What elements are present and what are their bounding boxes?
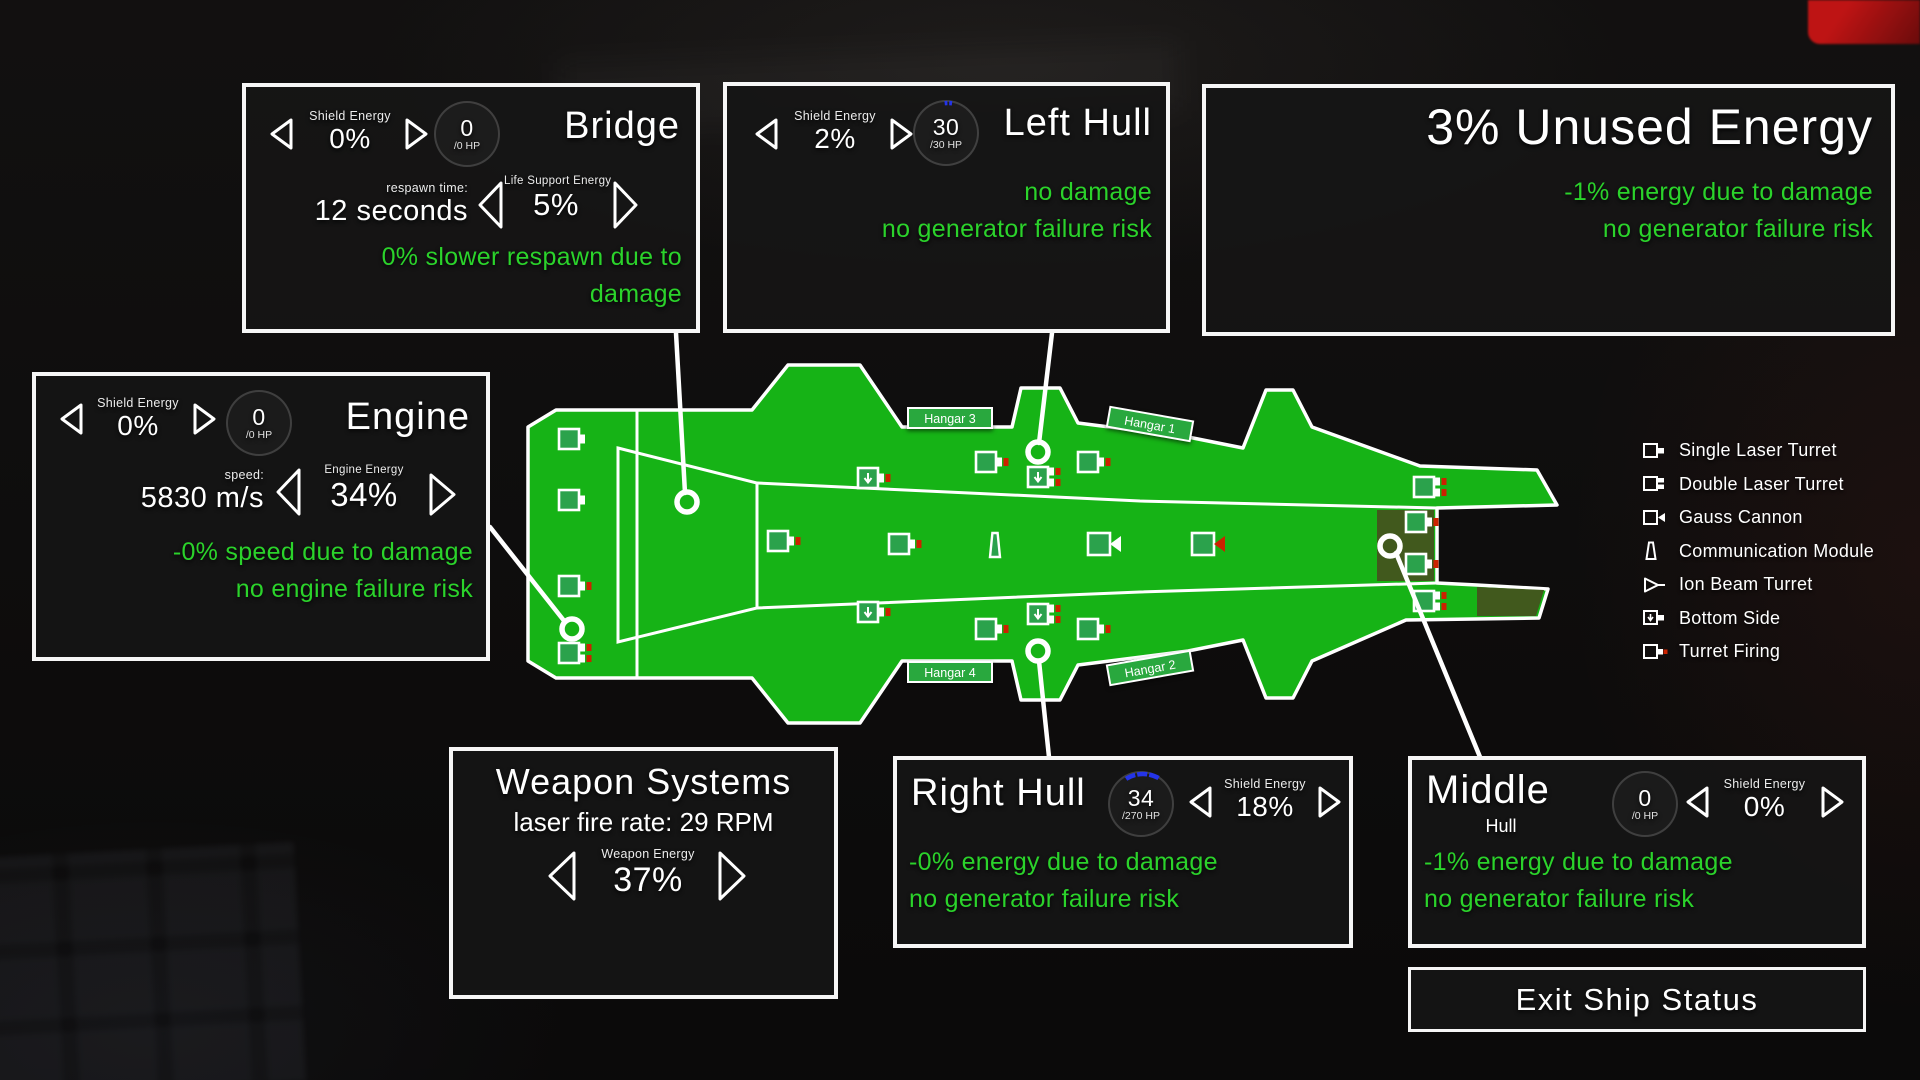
shield-arc xyxy=(1108,771,1178,841)
middle-hull-panel-subtitle: Hull xyxy=(1426,816,1576,837)
engine-energy-label: Engine Energy xyxy=(308,464,420,476)
legend-row: Turret Firing xyxy=(1642,635,1874,669)
shield-energy-label: Shield Energy xyxy=(1215,777,1315,791)
legend-row: Bottom Side xyxy=(1642,602,1874,636)
bridge-panel-title: Bridge xyxy=(564,105,680,148)
hp-value: 0 xyxy=(460,117,473,139)
left-hull-status-text: no damage no generator failure risk xyxy=(882,174,1152,248)
weapon-energy-decrease-arrow[interactable] xyxy=(545,849,577,903)
engine-shield-decrease-arrow[interactable] xyxy=(58,402,84,436)
speed-label: speed: xyxy=(46,468,264,482)
shield-energy-value: 0% xyxy=(86,410,190,442)
shield-energy-label: Shield Energy xyxy=(783,109,887,123)
bridge-panel: Shield Energy 0% 0 /0 HP Bridge respawn … xyxy=(242,83,700,333)
ion-beam-turret-icon xyxy=(1642,574,1668,596)
ship-status-screen: Hangar 3 Hangar 1 Hangar 4 Hangar 2 xyxy=(0,0,1920,1080)
legend-label: Ion Beam Turret xyxy=(1679,574,1813,595)
engine-shield-stat: Shield Energy 0% xyxy=(86,396,190,442)
left-hull-shield-increase-arrow[interactable] xyxy=(889,117,915,151)
middle-hull-hp-indicator: 0 /0 HP xyxy=(1612,771,1678,837)
legend-label: Single Laser Turret xyxy=(1679,440,1837,461)
engine-energy-value: 34% xyxy=(308,476,420,514)
exit-ship-status-button[interactable]: Exit Ship Status xyxy=(1408,967,1866,1032)
left-hull-panel-title: Left Hull xyxy=(1004,102,1152,145)
bridge-shield-increase-arrow[interactable] xyxy=(404,117,430,151)
engine-energy-decrease-arrow[interactable] xyxy=(274,466,302,518)
status-line: no damage xyxy=(882,174,1152,211)
status-line: damage xyxy=(382,276,682,313)
status-line: no generator failure risk xyxy=(882,211,1152,248)
bridge-respawn-stat: respawn time: 12 seconds xyxy=(262,181,468,228)
engine-hp-indicator: 0 /0 HP xyxy=(226,390,292,456)
status-line: -1% energy due to damage xyxy=(1424,844,1733,881)
respawn-time-label: respawn time: xyxy=(262,181,468,195)
gauss-cannon-icon xyxy=(1642,507,1668,529)
hangar-3-label: Hangar 3 xyxy=(908,408,992,428)
shield-energy-label: Shield Energy xyxy=(298,109,402,123)
weapon-systems-title: Weapon Systems xyxy=(453,761,834,803)
respawn-time-value: 12 seconds xyxy=(262,195,468,228)
laser-fire-rate: laser fire rate: 29 RPM xyxy=(453,807,834,838)
weapon-energy-increase-arrow[interactable] xyxy=(717,849,749,903)
legend-row: Ion Beam Turret xyxy=(1642,568,1874,602)
bridge-hp-indicator: 0 /0 HP xyxy=(434,101,500,167)
communication-module xyxy=(990,533,1000,557)
status-line: no engine failure risk xyxy=(173,571,473,608)
legend-label: Communication Module xyxy=(1679,541,1874,562)
right-hull-hp-indicator: 34 /270 HP xyxy=(1108,771,1174,837)
shield-arc xyxy=(913,100,983,170)
hp-value: 0 xyxy=(1638,787,1651,809)
right-hull-panel-title: Right Hull xyxy=(911,772,1086,815)
legend-row: Gauss Cannon xyxy=(1642,501,1874,535)
single-laser-turret-icon xyxy=(1642,440,1668,462)
life-support-decrease-arrow[interactable] xyxy=(476,179,504,231)
engine-energy-increase-arrow[interactable] xyxy=(428,471,458,518)
weapon-energy-stat: Weapon Energy 37% xyxy=(583,847,713,900)
shield-energy-value: 2% xyxy=(783,123,887,155)
life-support-increase-arrow[interactable] xyxy=(612,179,640,231)
right-hull-shield-stat: Shield Energy 18% xyxy=(1215,777,1315,823)
right-hull-shield-increase-arrow[interactable] xyxy=(1317,785,1343,819)
middle-hull-shield-decrease-arrow[interactable] xyxy=(1684,785,1710,819)
engine-energy-stat: Engine Energy 34% xyxy=(308,464,420,514)
engine-status-text: -0% speed due to damage no engine failur… xyxy=(173,534,473,608)
middle-hull-shield-stat: Shield Energy 0% xyxy=(1712,777,1817,823)
status-line: no generator failure risk xyxy=(909,881,1218,918)
speed-value: 5830 m/s xyxy=(46,482,264,515)
hangar-4-label: Hangar 4 xyxy=(908,662,992,682)
life-support-label: Life Support Energy xyxy=(504,175,608,187)
hp-max: /0 HP xyxy=(1632,810,1658,822)
exit-button-label: Exit Ship Status xyxy=(1516,982,1759,1018)
unused-energy-title: 3% Unused Energy xyxy=(1426,98,1873,156)
life-support-stat: Life Support Energy 5% xyxy=(504,175,608,223)
life-support-value: 5% xyxy=(504,187,608,223)
middle-hull-status-text: -1% energy due to damage no generator fa… xyxy=(1424,844,1733,918)
unused-energy-panel: 3% Unused Energy -1% energy due to damag… xyxy=(1202,84,1895,336)
shield-energy-value: 0% xyxy=(298,123,402,155)
double-laser-turret-icon xyxy=(1642,473,1668,495)
status-line: no generator failure risk xyxy=(1424,881,1733,918)
middle-hull-panel-title: Middle xyxy=(1426,768,1550,813)
svg-text:Hangar 4: Hangar 4 xyxy=(924,666,975,680)
legend-row: Double Laser Turret xyxy=(1642,468,1874,502)
engine-speed-stat: speed: 5830 m/s xyxy=(46,468,264,515)
shield-energy-value: 0% xyxy=(1712,791,1817,823)
bridge-shield-decrease-arrow[interactable] xyxy=(268,117,294,151)
status-line: -0% speed due to damage xyxy=(173,534,473,571)
engine-panel-title: Engine xyxy=(346,396,470,439)
hp-max: /0 HP xyxy=(454,140,480,152)
weapon-energy-value: 37% xyxy=(583,861,713,900)
bridge-status-text: 0% slower respawn due to damage xyxy=(382,239,682,313)
damaged-prong-zone xyxy=(1477,587,1544,616)
shield-energy-label: Shield Energy xyxy=(86,396,190,410)
bottom-side-icon xyxy=(1642,607,1668,629)
right-hull-shield-decrease-arrow[interactable] xyxy=(1187,785,1213,819)
weapon-energy-label: Weapon Energy xyxy=(583,847,713,861)
status-line: -1% energy due to damage xyxy=(1564,174,1873,211)
shield-energy-label: Shield Energy xyxy=(1712,777,1817,791)
legend-label: Bottom Side xyxy=(1679,608,1780,629)
hp-value: 0 xyxy=(252,406,265,428)
left-hull-panel: Shield Energy 2% 30 /30 HP Left Hull no … xyxy=(723,82,1170,333)
communication-module-icon xyxy=(1642,540,1668,562)
legend-row: Single Laser Turret xyxy=(1642,434,1874,468)
status-line: no generator failure risk xyxy=(1564,211,1873,248)
turret-legend: Single Laser Turret Double Laser Turret … xyxy=(1642,434,1874,669)
hp-max: /0 HP xyxy=(246,429,272,441)
bridge-shield-stat: Shield Energy 0% xyxy=(298,109,402,155)
svg-text:Hangar 3: Hangar 3 xyxy=(924,412,975,426)
weapon-systems-panel: Weapon Systems laser fire rate: 29 RPM W… xyxy=(449,747,838,999)
engine-panel: Shield Energy 0% 0 /0 HP Engine speed: 5… xyxy=(32,372,490,661)
status-line: -0% energy due to damage xyxy=(909,844,1218,881)
middle-hull-shield-increase-arrow[interactable] xyxy=(1820,785,1846,819)
legend-label: Gauss Cannon xyxy=(1679,507,1803,528)
middle-hull-panel: Middle Hull 0 /0 HP Shield Energy 0% -1%… xyxy=(1408,756,1866,948)
left-hull-shield-stat: Shield Energy 2% xyxy=(783,109,887,155)
engine-shield-increase-arrow[interactable] xyxy=(192,402,218,436)
right-hull-panel: Right Hull 34 /270 HP Shield Energy 18% … xyxy=(893,756,1353,948)
shield-energy-value: 18% xyxy=(1215,791,1315,823)
legend-label: Double Laser Turret xyxy=(1679,474,1844,495)
left-hull-shield-decrease-arrow[interactable] xyxy=(753,117,779,151)
status-line: 0% slower respawn due to xyxy=(382,239,682,276)
right-hull-status-text: -0% energy due to damage no generator fa… xyxy=(909,844,1218,918)
turret-firing-icon xyxy=(1642,641,1668,663)
unused-energy-status-text: -1% energy due to damage no generator fa… xyxy=(1564,174,1873,248)
left-hull-hp-indicator: 30 /30 HP xyxy=(913,100,979,166)
legend-row: Communication Module xyxy=(1642,535,1874,569)
legend-label: Turret Firing xyxy=(1679,641,1780,662)
